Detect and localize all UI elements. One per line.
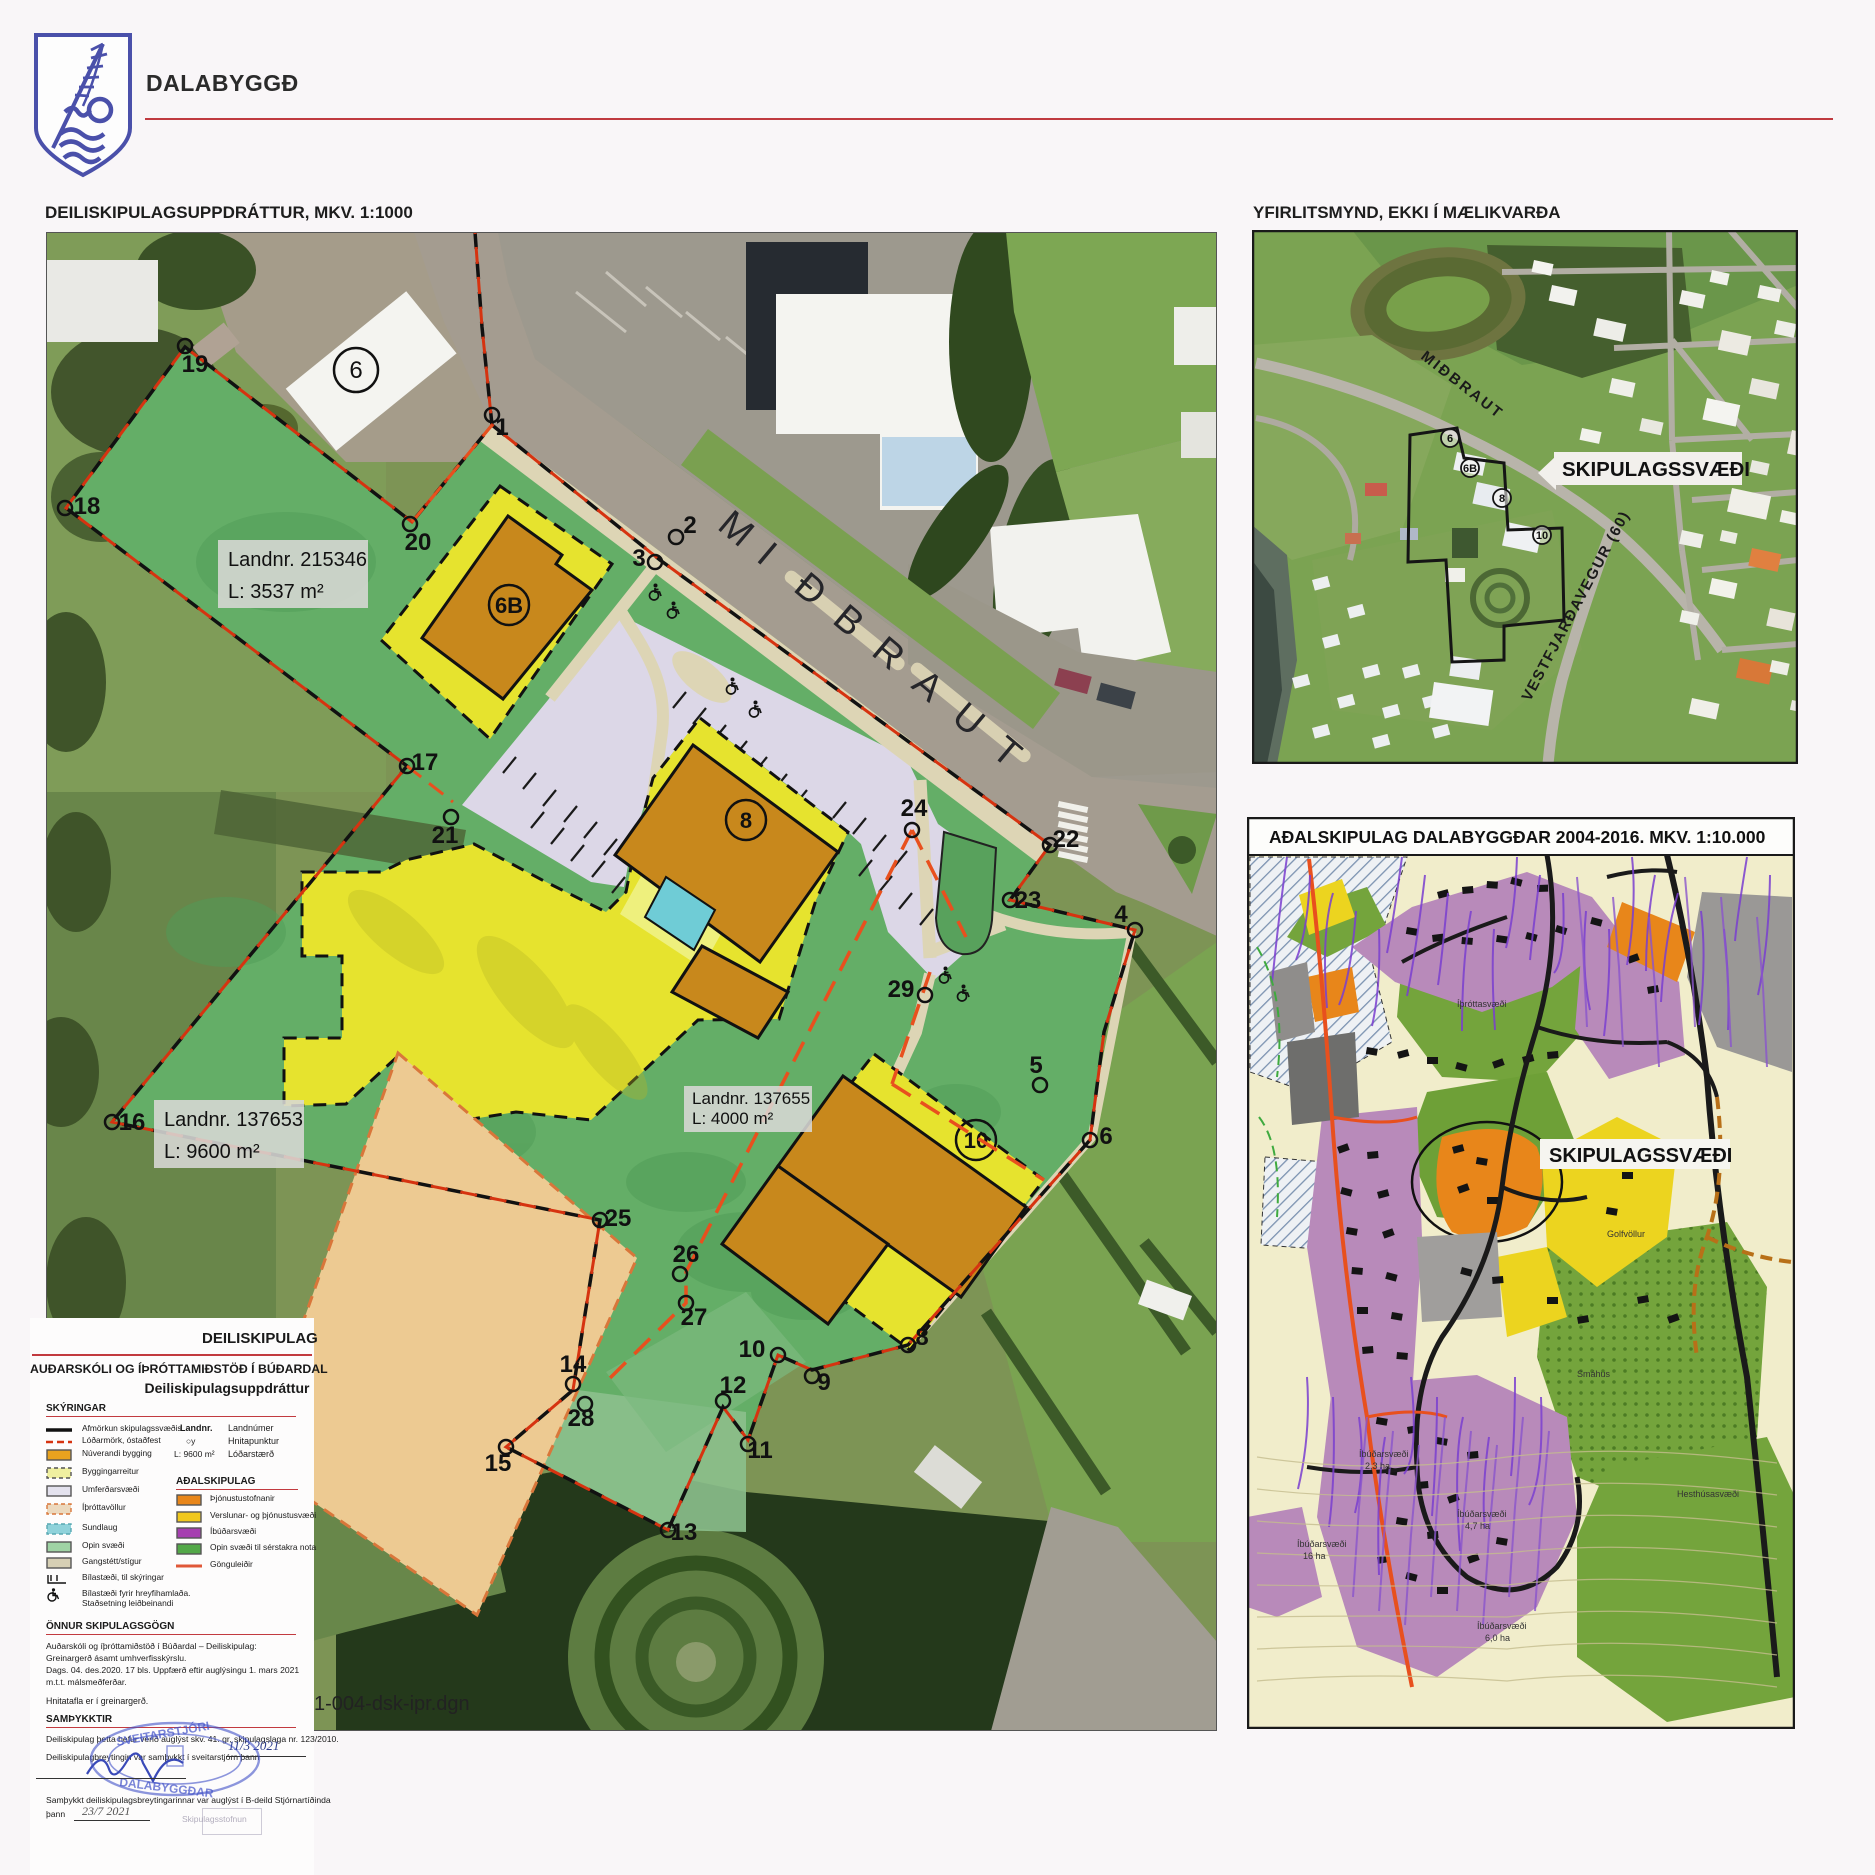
- svg-text:1-004-dsk-ipr.dgn: 1-004-dsk-ipr.dgn: [314, 1693, 470, 1715]
- svg-text:Íbúðarsvæði: Íbúðarsvæði: [1477, 1621, 1527, 1631]
- svg-text:Íbúðarsvæði: Íbúðarsvæði: [1359, 1449, 1409, 1459]
- svg-text:4,7 ha: 4,7 ha: [1465, 1521, 1490, 1531]
- svg-text:3: 3: [632, 545, 645, 572]
- svg-text:AÐALSKIPULAG DALABYGGÐAR 2004-: AÐALSKIPULAG DALABYGGÐAR 2004-2016. MKV.…: [1269, 827, 1766, 847]
- svg-text:6: 6: [1099, 1123, 1112, 1150]
- svg-text:5: 5: [1029, 1052, 1042, 1079]
- svg-text:10: 10: [1536, 530, 1548, 542]
- svg-text:19: 19: [182, 351, 209, 378]
- svg-text:Hesthúsasvæði: Hesthúsasvæði: [1677, 1489, 1739, 1499]
- svg-text:13: 13: [671, 1519, 698, 1546]
- svg-text:25: 25: [605, 1205, 632, 1232]
- svg-text:Landnr. 137655: Landnr. 137655: [692, 1089, 810, 1108]
- svg-text:29: 29: [888, 976, 915, 1003]
- svg-text:18: 18: [74, 493, 101, 520]
- svg-text:14: 14: [560, 1351, 587, 1378]
- svg-text:1: 1: [495, 414, 508, 441]
- svg-text:8: 8: [915, 1324, 928, 1351]
- svg-text:L: 4000 m²: L: 4000 m²: [692, 1109, 774, 1128]
- svg-text:10: 10: [739, 1336, 766, 1363]
- svg-text:2: 2: [683, 512, 696, 539]
- svg-text:6,0 ha: 6,0 ha: [1485, 1633, 1510, 1643]
- svg-text:Landnr. 137653: Landnr. 137653: [164, 1109, 303, 1131]
- svg-text:16 ha: 16 ha: [1303, 1551, 1326, 1561]
- svg-text:6: 6: [349, 357, 362, 384]
- svg-text:Íbúðarsvæði: Íbúðarsvæði: [1457, 1509, 1507, 1519]
- svg-text:Landnr. 215346: Landnr. 215346: [228, 549, 367, 571]
- svg-text:21: 21: [432, 822, 459, 849]
- svg-text:16: 16: [119, 1109, 146, 1136]
- svg-text:15: 15: [485, 1450, 512, 1477]
- svg-text:27: 27: [681, 1304, 708, 1331]
- svg-text:Íbúðarsvæði: Íbúðarsvæði: [1297, 1539, 1347, 1549]
- svg-text:Smáhus: Smáhus: [1577, 1369, 1611, 1379]
- svg-text:2,3 ha: 2,3 ha: [1365, 1461, 1390, 1471]
- svg-text:8: 8: [740, 808, 752, 833]
- svg-text:Golfvöllur: Golfvöllur: [1607, 1229, 1645, 1239]
- svg-text:26: 26: [673, 1241, 700, 1268]
- svg-text:24: 24: [901, 795, 928, 822]
- svg-text:6B: 6B: [495, 593, 523, 618]
- svg-text:Íþróttasvæði: Íþróttasvæði: [1457, 999, 1507, 1009]
- svg-text:12: 12: [720, 1372, 747, 1399]
- svg-text:9: 9: [817, 1369, 830, 1396]
- svg-text:28: 28: [568, 1405, 595, 1432]
- svg-text:11: 11: [747, 1437, 772, 1464]
- svg-text:SKIPULAGSSVÆÐI: SKIPULAGSSVÆÐI: [1549, 1145, 1732, 1167]
- svg-text:17: 17: [412, 749, 439, 776]
- svg-text:L: 3537 m²: L: 3537 m²: [228, 581, 324, 603]
- svg-text:6: 6: [1447, 433, 1453, 445]
- svg-text:20: 20: [405, 529, 432, 556]
- svg-text:22: 22: [1053, 826, 1080, 853]
- svg-text:6B: 6B: [1463, 463, 1477, 475]
- svg-text:8: 8: [1499, 493, 1505, 505]
- svg-text:SKIPULAGSSVÆÐI: SKIPULAGSSVÆÐI: [1562, 458, 1750, 481]
- svg-text:23: 23: [1015, 887, 1042, 914]
- svg-text:4: 4: [1114, 901, 1128, 928]
- svg-text:L: 9600 m²: L: 9600 m²: [164, 1141, 260, 1163]
